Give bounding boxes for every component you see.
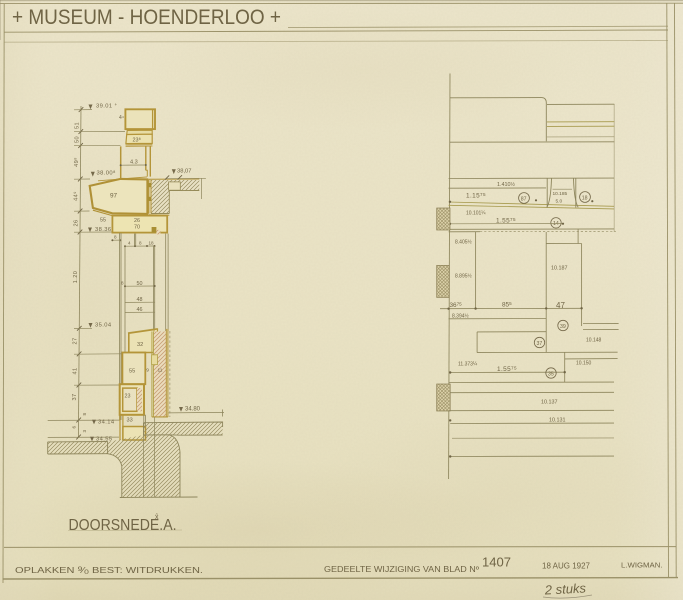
svg-text:34.14: 34.14 [98, 419, 115, 425]
svg-text:4: 4 [128, 241, 131, 246]
svg-text:46: 46 [137, 307, 143, 313]
svg-text:5.0: 5.0 [556, 198, 563, 204]
svg-text:49⁸: 49⁸ [73, 157, 80, 167]
svg-text:10.187: 10.187 [551, 266, 568, 272]
svg-text:9: 9 [146, 368, 149, 374]
svg-text:8: 8 [82, 412, 87, 415]
svg-text:50: 50 [74, 136, 80, 143]
svg-text:OPLAKKEN 9⁄0 BEST: WITDRUKKEN.: OPLAKKEN 9⁄0 BEST: WITDRUKKEN. [15, 566, 203, 576]
svg-text:97: 97 [110, 193, 118, 200]
svg-text:55: 55 [100, 218, 106, 224]
svg-text:70: 70 [134, 225, 140, 231]
svg-text:8.394½: 8.394½ [452, 313, 470, 320]
svg-text:38.36: 38.36 [95, 227, 112, 233]
svg-text:11.373¼: 11.373¼ [458, 362, 478, 368]
svg-text:x̂: x̂ [155, 514, 159, 521]
svg-text:8: 8 [121, 281, 124, 286]
svg-text:87: 87 [521, 196, 527, 202]
svg-text:18: 18 [582, 195, 588, 201]
svg-text:8: 8 [114, 235, 117, 240]
svg-text:14: 14 [553, 221, 559, 227]
svg-text:34.80: 34.80 [185, 407, 201, 413]
svg-text:48: 48 [137, 297, 143, 303]
svg-text:1407: 1407 [482, 555, 511, 570]
svg-text:51: 51 [75, 122, 81, 129]
svg-text:32: 32 [137, 342, 143, 348]
svg-text:23: 23 [125, 394, 131, 400]
svg-text:33: 33 [127, 418, 133, 424]
svg-text:GEDEELTE WIJZIGING VAN BLAD Nº: GEDEELTE WIJZIGING VAN BLAD Nº [324, 565, 479, 574]
svg-text:26: 26 [73, 219, 79, 226]
svg-text:10.185: 10.185 [553, 191, 568, 197]
svg-text:44⁹: 44⁹ [73, 191, 80, 201]
svg-text:10.148: 10.148 [586, 338, 602, 344]
svg-text:38,07: 38,07 [177, 169, 192, 175]
svg-text:23⁸: 23⁸ [133, 138, 141, 144]
svg-text:10.101¼: 10.101¼ [466, 211, 486, 217]
svg-text:39: 39 [560, 324, 566, 330]
svg-text:6: 6 [72, 425, 77, 428]
svg-text:26: 26 [134, 218, 140, 224]
svg-text:35: 35 [548, 371, 554, 377]
svg-text:27: 27 [73, 337, 79, 344]
svg-text:10.137: 10.137 [541, 400, 558, 406]
svg-text:8.405½: 8.405½ [455, 239, 473, 246]
svg-text:+ MUSEUM - HOENDERLOO +: + MUSEUM - HOENDERLOO + [12, 5, 281, 29]
svg-text:10.150: 10.150 [576, 361, 592, 367]
svg-text:1.20: 1.20 [73, 271, 79, 284]
svg-text:55: 55 [129, 369, 135, 375]
svg-text:10.131: 10.131 [549, 418, 566, 424]
svg-text:50: 50 [137, 281, 143, 287]
svg-text:4.3: 4.3 [130, 160, 138, 166]
svg-text:37: 37 [72, 393, 78, 400]
svg-text:4⁴: 4⁴ [119, 115, 124, 121]
svg-text:DOORSNEDE.A.: DOORSNEDE.A. [69, 517, 177, 534]
svg-text:8.895½: 8.895½ [455, 273, 473, 280]
svg-text:37: 37 [537, 341, 543, 347]
svg-text:39.01 +: 39.01 + [96, 102, 118, 110]
svg-text:38.00⁸: 38.00⁸ [97, 170, 117, 177]
svg-text:8: 8 [139, 240, 142, 245]
svg-text:18 AUG 1927: 18 AUG 1927 [542, 562, 590, 571]
svg-text:18: 18 [149, 240, 155, 245]
svg-text:2 stuks: 2 stuks [543, 580, 586, 597]
svg-text:41: 41 [72, 367, 78, 374]
svg-text:11: 11 [158, 368, 163, 374]
svg-text:1.410½: 1.410½ [497, 181, 515, 188]
svg-text:47: 47 [556, 301, 565, 310]
svg-text:L.WIGMAN.: L.WIGMAN. [621, 561, 663, 570]
svg-text:3: 3 [82, 429, 87, 432]
svg-text:35.04: 35.04 [95, 323, 112, 329]
